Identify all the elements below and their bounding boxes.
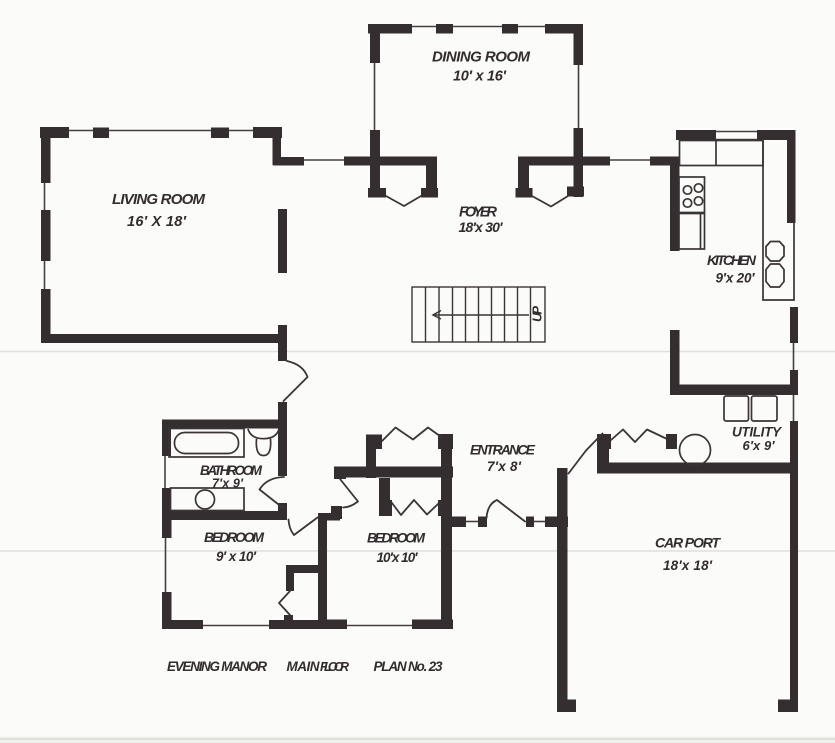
svg-text:BEDROOM: BEDROOM xyxy=(367,530,425,546)
svg-text:KITCHEN: KITCHEN xyxy=(707,252,757,268)
svg-text:9′x 20′: 9′x 20′ xyxy=(716,271,756,286)
svg-text:EVENING MANOR: EVENING MANOR xyxy=(167,659,267,674)
svg-text:MAIN: MAIN xyxy=(287,659,320,674)
svg-text:9′ x 10′: 9′ x 10′ xyxy=(216,549,257,564)
svg-text:ENTRANCE: ENTRANCE xyxy=(470,442,536,458)
svg-text:7′x 9′: 7′x 9′ xyxy=(212,477,244,491)
svg-text:UP: UP xyxy=(530,306,545,322)
svg-text:6′x 9′: 6′x 9′ xyxy=(743,438,776,453)
svg-text:18′x 18′: 18′x 18′ xyxy=(663,558,713,573)
svg-text:LIVING ROOM: LIVING ROOM xyxy=(112,191,206,208)
svg-text:10′ x 16′: 10′ x 16′ xyxy=(453,69,507,85)
svg-text:BEDROOM: BEDROOM xyxy=(204,529,264,545)
svg-text:10′x 10′: 10′x 10′ xyxy=(377,550,419,565)
svg-text:FLOOR: FLOOR xyxy=(320,660,349,674)
svg-text:18′x 30′: 18′x 30′ xyxy=(459,219,504,235)
svg-text:PLAN No. 23: PLAN No. 23 xyxy=(374,659,443,674)
svg-text:DINING ROOM: DINING ROOM xyxy=(432,49,531,66)
svg-text:16′ X 18′: 16′ X 18′ xyxy=(127,214,187,230)
svg-text:7′x 8′: 7′x 8′ xyxy=(487,459,522,474)
svg-text:CAR PORT: CAR PORT xyxy=(655,535,721,551)
